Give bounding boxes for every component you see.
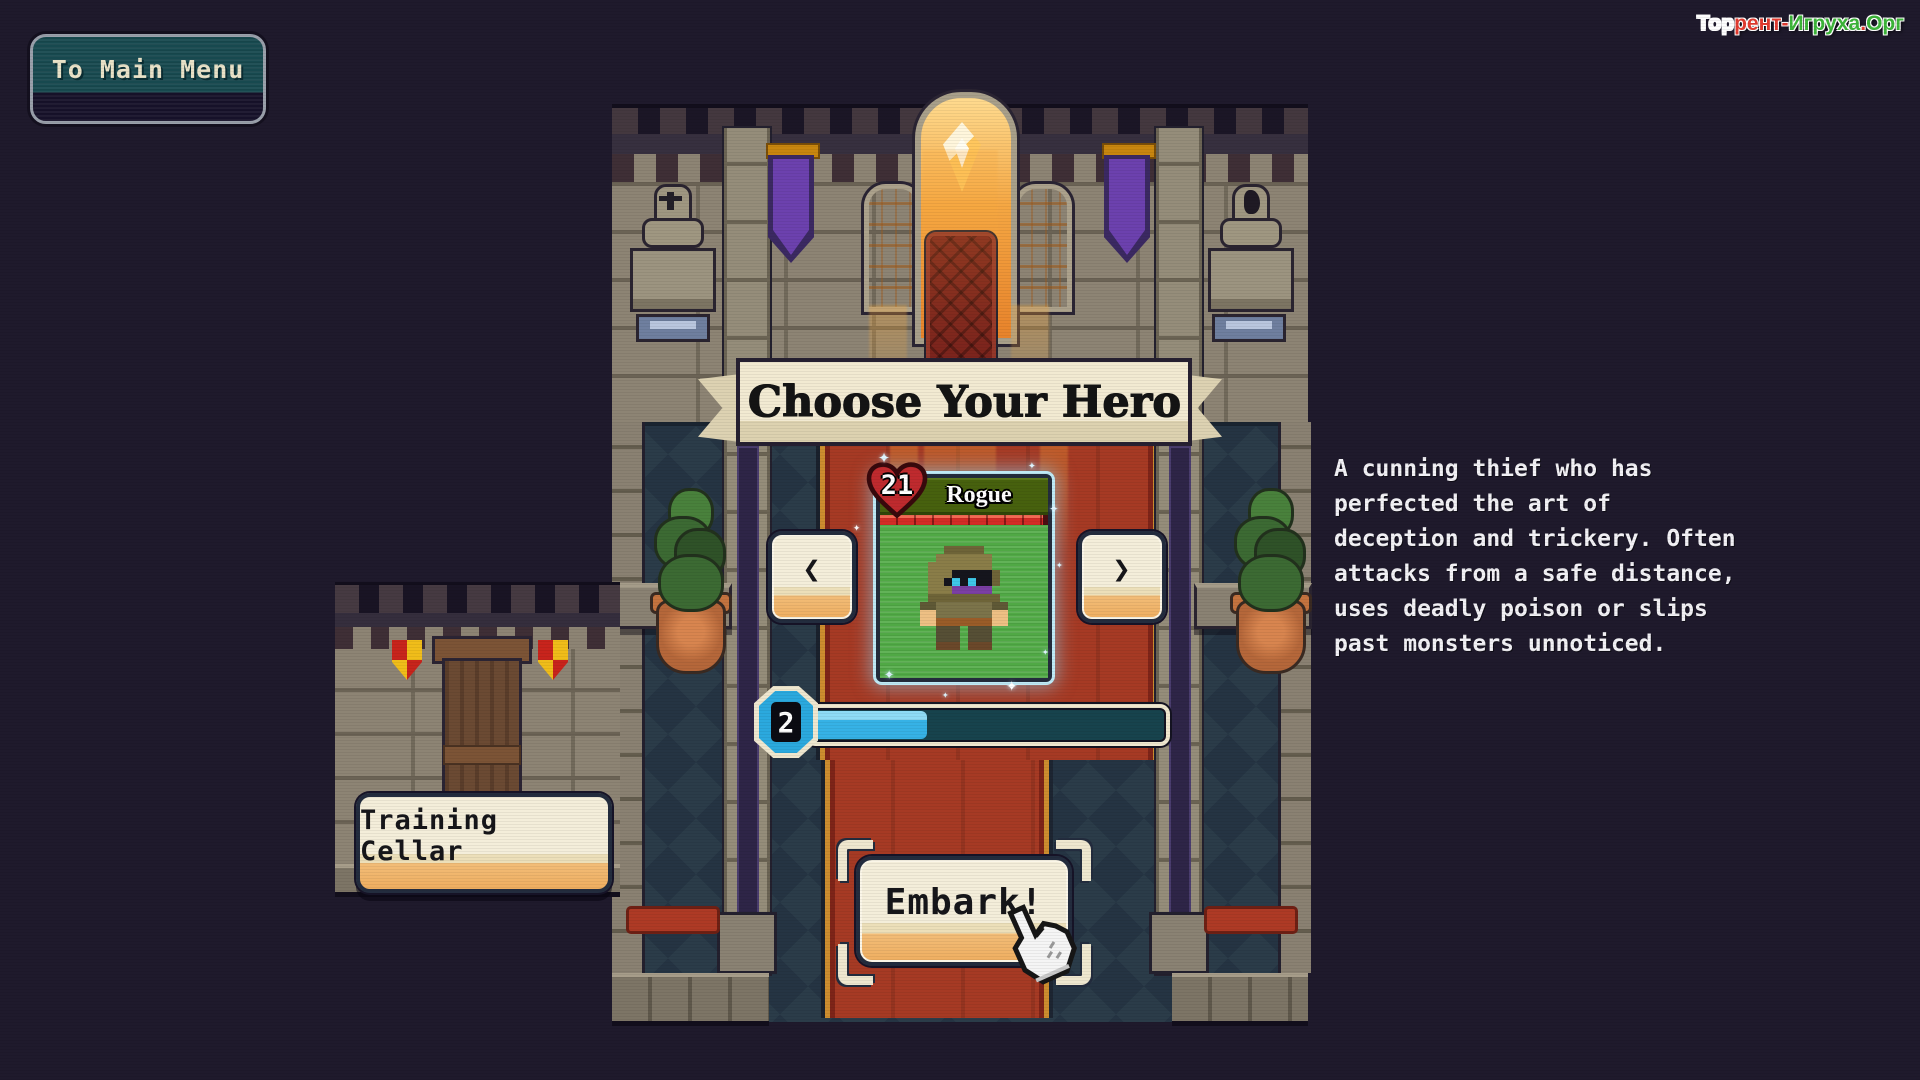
arched-window-left: [864, 184, 922, 312]
hero-name: Rogue: [916, 482, 1011, 509]
door-mat-left: [626, 906, 720, 934]
description-line: deception and trickery. Often: [1334, 522, 1784, 557]
description-line: uses deadly poison or slips: [1334, 592, 1784, 627]
level-value: 2: [778, 706, 795, 739]
health-heart-icon: 21: [866, 462, 928, 518]
wall-plaque-left: [636, 314, 710, 342]
hero-card[interactable]: Rogue 21: [876, 474, 1052, 682]
stone-ledge-left: [612, 973, 769, 1021]
training-cellar-label: Training Cellar: [360, 805, 608, 867]
watermark-segment: Тор: [1697, 12, 1734, 35]
cellar-crenellation: [335, 585, 620, 613]
potted-plant-right: [1224, 488, 1314, 670]
game-screen: Choose Your Hero 2: [0, 0, 1920, 1080]
next-hero-button[interactable]: ❯: [1078, 531, 1166, 623]
prev-arrow-icon: ❮: [802, 552, 821, 587]
health-value: 21: [866, 470, 928, 501]
door-mat-right: [1204, 906, 1298, 934]
arched-window-right: [1014, 184, 1072, 312]
banner-title: Choose Your Hero: [747, 377, 1180, 427]
description-line: perfected the art of: [1334, 487, 1784, 522]
to-main-menu-label: To Main Menu: [52, 55, 245, 84]
watermark-segment: Орг: [1866, 12, 1904, 35]
hero-description: A cunning thief who has perfected the ar…: [1334, 452, 1784, 662]
prev-hero-button[interactable]: ❮: [768, 531, 856, 623]
potted-plant-left: [644, 488, 734, 670]
wall-plaque-right: [1212, 314, 1286, 342]
description-line: past monsters unnoticed.: [1334, 627, 1784, 662]
training-cellar-button[interactable]: Training Cellar: [356, 793, 612, 893]
description-line: A cunning thief who has: [1334, 452, 1784, 487]
stone-ledge-right: [1172, 973, 1308, 1021]
description-line: attacks from a safe distance,: [1334, 557, 1784, 592]
purple-banner-right: [1104, 143, 1150, 265]
site-watermark: Торрент-Игруха.Орг: [1697, 12, 1904, 36]
purple-banner-left: [768, 143, 814, 265]
watermark-segment: рент-: [1734, 12, 1788, 35]
to-main-menu-button[interactable]: To Main Menu: [30, 34, 266, 124]
rogue-sprite-icon: [912, 546, 1016, 658]
level-badge: 2: [754, 686, 818, 758]
embark-button[interactable]: Embark!: [856, 856, 1072, 966]
watermark-segment: Игруха: [1789, 12, 1861, 35]
next-arrow-icon: ❯: [1112, 552, 1131, 587]
hero-portrait: [880, 525, 1048, 678]
choose-hero-banner: Choose Your Hero: [736, 358, 1192, 446]
xp-progress-bar: [806, 704, 1170, 746]
embark-label: Embark!: [885, 882, 1044, 923]
cellar-roof-band: [335, 613, 620, 627]
xp-progress-fill: [813, 711, 927, 739]
